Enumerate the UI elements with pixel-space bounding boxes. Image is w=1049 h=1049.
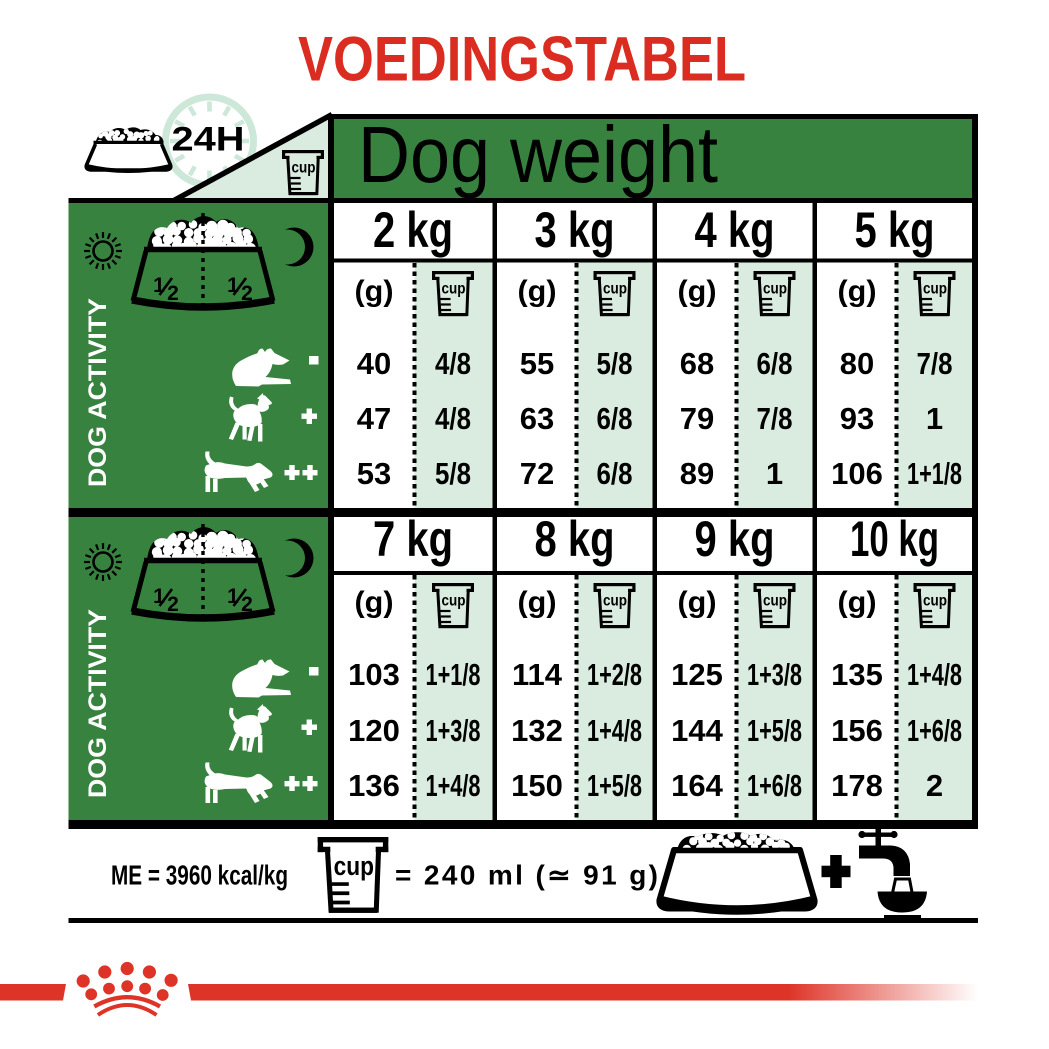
svg-text:DOG ACTIVITY: DOG ACTIVITY xyxy=(84,298,112,487)
svg-text:Dog weight: Dog weight xyxy=(358,110,718,199)
svg-text:(g): (g) xyxy=(355,275,394,308)
svg-text:1+4/8: 1+4/8 xyxy=(907,657,962,692)
svg-text:136: 136 xyxy=(348,768,400,803)
svg-text:47: 47 xyxy=(357,401,391,436)
svg-text:1+1/8: 1+1/8 xyxy=(907,456,962,491)
svg-text:ME = 3960 kcal/kg: ME = 3960 kcal/kg xyxy=(111,860,288,891)
svg-text:5/8: 5/8 xyxy=(435,456,471,491)
svg-text:156: 156 xyxy=(831,713,883,748)
svg-text:72: 72 xyxy=(520,456,554,491)
svg-text:(g): (g) xyxy=(678,275,717,308)
svg-text:120: 120 xyxy=(348,713,400,748)
svg-text:40: 40 xyxy=(357,346,391,381)
svg-text:93: 93 xyxy=(840,401,874,436)
svg-text:144: 144 xyxy=(671,713,723,748)
svg-text:3 kg: 3 kg xyxy=(535,202,615,258)
svg-text:6/8: 6/8 xyxy=(597,456,633,491)
svg-text:125: 125 xyxy=(671,657,723,692)
svg-text:80: 80 xyxy=(840,346,874,381)
svg-text:4/8: 4/8 xyxy=(435,346,471,381)
svg-text:79: 79 xyxy=(680,401,714,436)
svg-text:(g): (g) xyxy=(355,586,394,619)
svg-text:VOEDINGSTABEL: VOEDINGSTABEL xyxy=(298,25,746,95)
svg-text:89: 89 xyxy=(680,456,714,491)
svg-text:2: 2 xyxy=(926,768,943,803)
svg-text:8 kg: 8 kg xyxy=(535,511,615,567)
svg-text:1+2/8: 1+2/8 xyxy=(587,657,642,692)
svg-text:1+4/8: 1+4/8 xyxy=(426,768,481,803)
svg-text:53: 53 xyxy=(357,456,391,491)
svg-text:(g): (g) xyxy=(838,586,877,619)
svg-text:68: 68 xyxy=(680,346,714,381)
svg-text:(g): (g) xyxy=(838,275,877,308)
svg-text:7 kg: 7 kg xyxy=(373,511,453,567)
svg-text:164: 164 xyxy=(671,768,723,803)
svg-text:1+6/8: 1+6/8 xyxy=(907,713,962,748)
svg-text:1+3/8: 1+3/8 xyxy=(747,657,802,692)
svg-text:103: 103 xyxy=(348,657,400,692)
svg-text:DOG ACTIVITY: DOG ACTIVITY xyxy=(84,609,112,798)
svg-text:(g): (g) xyxy=(678,586,717,619)
svg-text:9 kg: 9 kg xyxy=(695,511,775,567)
svg-text:1+5/8: 1+5/8 xyxy=(587,768,642,803)
svg-text:7/8: 7/8 xyxy=(917,346,953,381)
svg-text:24H: 24H xyxy=(172,121,245,159)
svg-text:63: 63 xyxy=(520,401,554,436)
svg-text:55: 55 xyxy=(520,346,554,381)
svg-text:135: 135 xyxy=(831,657,883,692)
svg-text:1+4/8: 1+4/8 xyxy=(587,713,642,748)
svg-text:4/8: 4/8 xyxy=(435,401,471,436)
svg-text:10 kg: 10 kg xyxy=(850,511,939,567)
svg-text:132: 132 xyxy=(511,713,563,748)
svg-text:= 240 ml (≃ 91 g): = 240 ml (≃ 91 g) xyxy=(395,860,658,891)
svg-text:5 kg: 5 kg xyxy=(855,202,935,258)
svg-text:2 kg: 2 kg xyxy=(373,202,453,258)
svg-text:150: 150 xyxy=(511,768,563,803)
svg-text:1+6/8: 1+6/8 xyxy=(747,768,802,803)
svg-text:1+1/8: 1+1/8 xyxy=(426,657,481,692)
svg-text:1+5/8: 1+5/8 xyxy=(747,713,802,748)
svg-text:6/8: 6/8 xyxy=(757,346,793,381)
svg-text:(g): (g) xyxy=(518,586,557,619)
svg-text:1: 1 xyxy=(766,456,783,491)
svg-text:1+3/8: 1+3/8 xyxy=(426,713,481,748)
svg-text:114: 114 xyxy=(512,657,563,692)
svg-text:4 kg: 4 kg xyxy=(695,202,775,258)
svg-text:1: 1 xyxy=(926,401,943,436)
svg-text:106: 106 xyxy=(831,456,883,491)
svg-text:178: 178 xyxy=(831,768,883,803)
svg-text:6/8: 6/8 xyxy=(597,401,633,436)
svg-text:5/8: 5/8 xyxy=(597,346,633,381)
svg-text:7/8: 7/8 xyxy=(757,401,793,436)
svg-text:(g): (g) xyxy=(518,275,557,308)
